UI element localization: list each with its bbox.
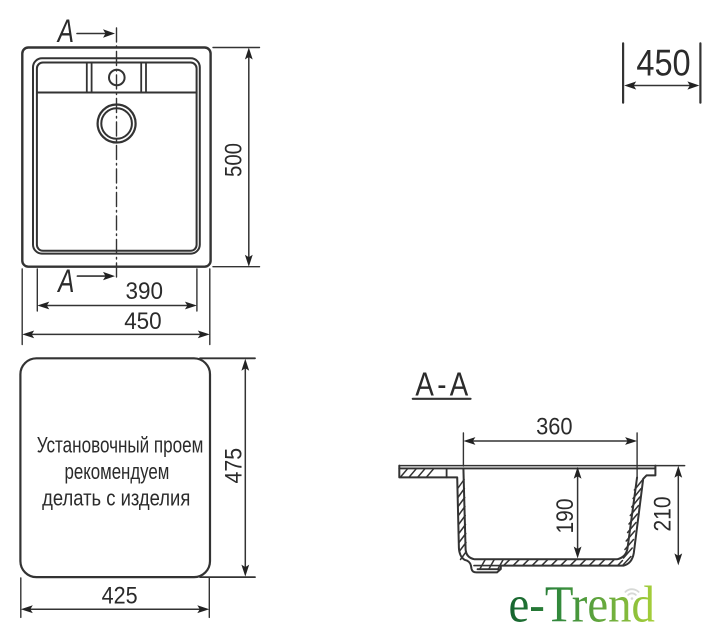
svg-text:425: 425 <box>102 583 138 610</box>
svg-text:450: 450 <box>636 43 690 84</box>
svg-text:Установочный проем: Установочный проем <box>37 433 204 458</box>
svg-text:A: A <box>56 264 74 300</box>
svg-text:475: 475 <box>221 448 248 484</box>
svg-text:делать с изделия: делать с изделия <box>42 487 190 511</box>
svg-text:A: A <box>56 14 74 50</box>
svg-text:A-A: A-A <box>415 366 471 403</box>
svg-text:390: 390 <box>126 278 164 305</box>
svg-text:рекомендуем: рекомендуем <box>64 460 169 485</box>
svg-text:e-Trend: e-Trend <box>509 575 656 633</box>
svg-text:190: 190 <box>552 499 579 534</box>
svg-text:450: 450 <box>124 308 162 335</box>
svg-text:210: 210 <box>649 497 676 532</box>
svg-text:500: 500 <box>221 143 248 177</box>
svg-text:360: 360 <box>536 414 573 441</box>
